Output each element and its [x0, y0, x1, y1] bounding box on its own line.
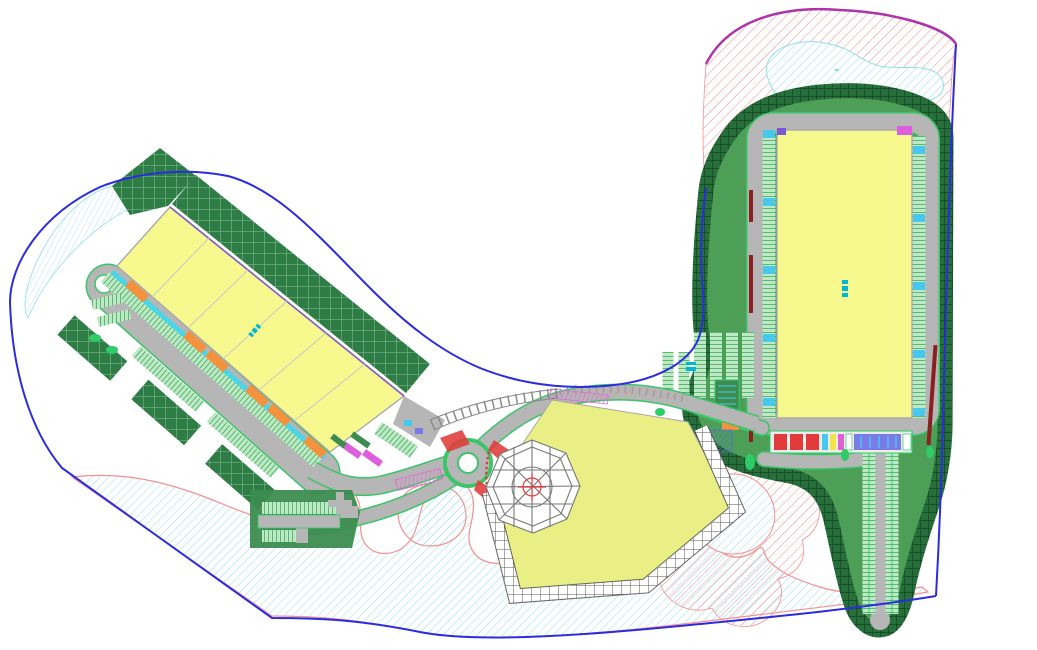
right-building-label-mark [842, 280, 848, 297]
site-plan-drawing: ≈ ≈ [0, 0, 1037, 650]
west-lot-stalls [92, 298, 122, 305]
octagon-pavilion [486, 440, 580, 533]
right-warehouse [777, 130, 912, 418]
site-plan-canvas: ≈ ≈ [0, 0, 1037, 650]
left-complex [66, 148, 445, 511]
corner-block-magenta [897, 126, 912, 135]
corner-block-purple [777, 128, 786, 135]
dock-bay-row [770, 431, 912, 453]
pond-label-mark: ≈ [834, 67, 839, 74]
